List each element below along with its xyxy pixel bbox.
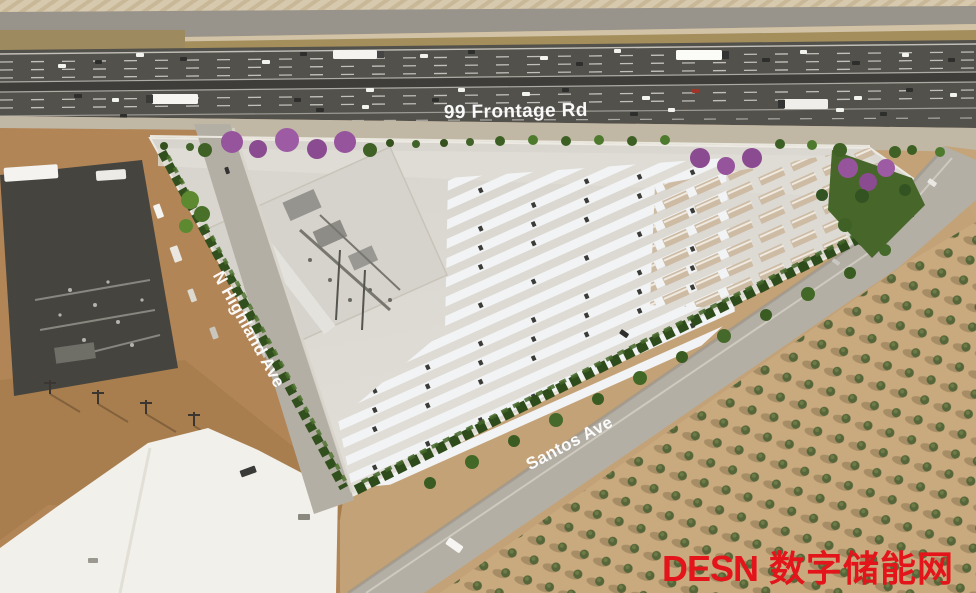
- road-label-99-frontage: 99 Frontage Rd: [444, 100, 588, 124]
- aerial-rendering-bess-site: 99 Frontage Rd N Highland Ave Santos Ave…: [0, 0, 976, 593]
- watermark-chinese-text: 数字储能网: [769, 548, 954, 589]
- white-trailer-2: [96, 169, 127, 181]
- scene-canvas: 99 Frontage Rd N Highland Ave Santos Ave: [0, 0, 976, 593]
- red-car: [692, 89, 699, 93]
- watermark-brand: DESN: [662, 548, 758, 589]
- watermark-logo: DESN数字储能网: [662, 551, 954, 587]
